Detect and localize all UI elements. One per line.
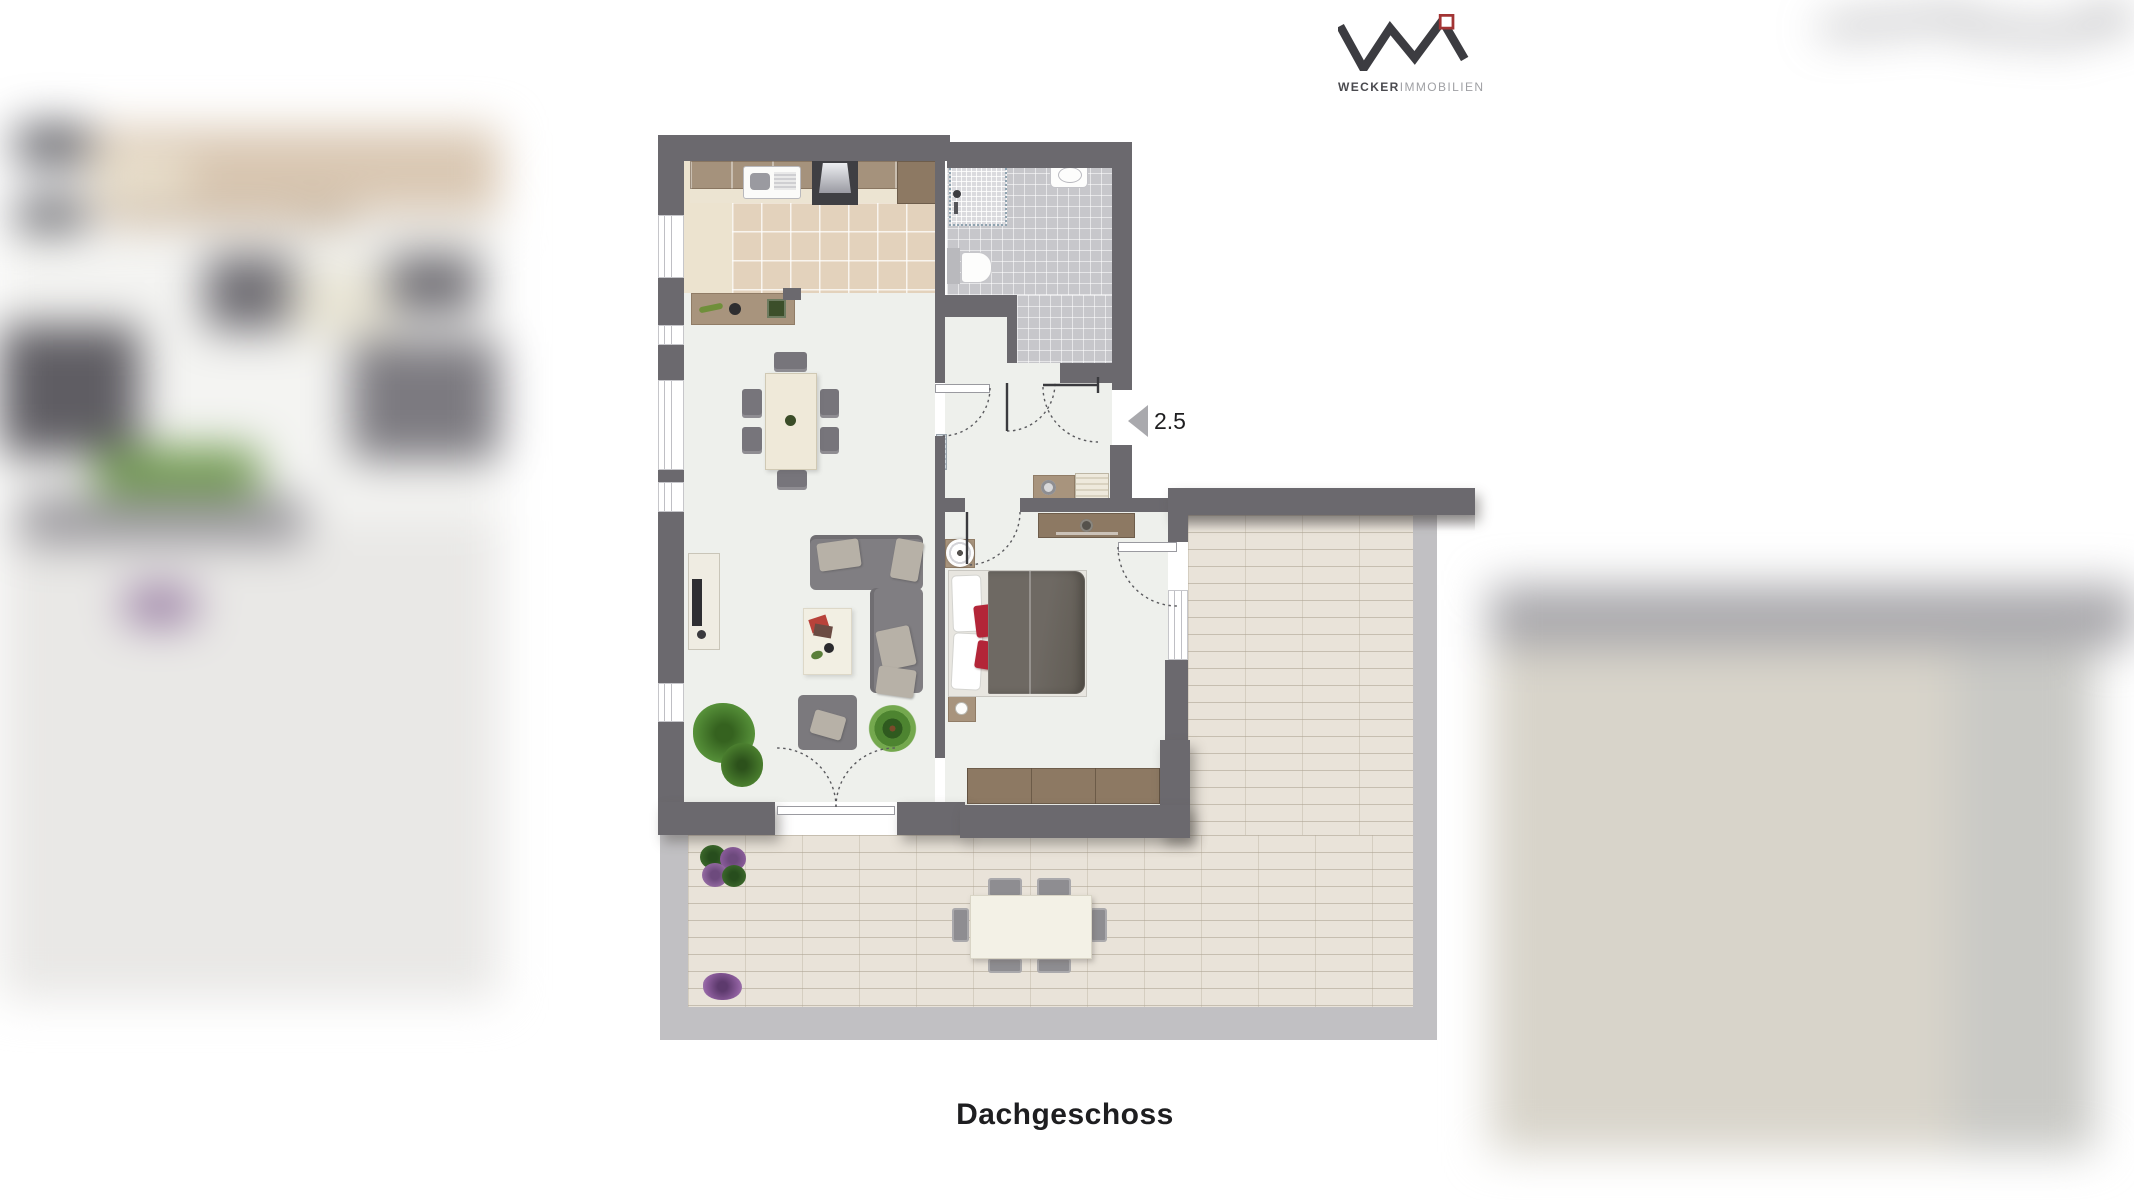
wall	[658, 722, 684, 802]
kitchen-corner-cabinet	[897, 161, 937, 204]
entrance-arrow-icon	[1128, 405, 1148, 437]
living-room-door-leaf	[935, 384, 990, 393]
bathroom-floor-lower	[1017, 295, 1112, 363]
blurred-shape	[1490, 585, 2134, 647]
sofa-cushion	[816, 538, 861, 572]
wall	[783, 288, 801, 300]
brand-name-light: IMMOBILIEN	[1400, 80, 1485, 94]
dining-table	[765, 373, 817, 470]
plant-foliage	[721, 743, 763, 787]
blurred-shape	[350, 340, 500, 460]
blurred-shape	[100, 200, 355, 225]
blurred-shape	[1960, 22, 2080, 39]
decor-bowl	[729, 303, 741, 315]
wall	[947, 142, 1132, 168]
decor-plant-box	[767, 299, 786, 318]
brand-logo: WECKERIMMOBILIEN	[1338, 14, 1488, 94]
sideboard	[691, 293, 795, 325]
dining-chair	[742, 389, 762, 418]
sofa-cushion	[875, 665, 917, 698]
logo-red-square	[1440, 15, 1453, 28]
planter-greens	[722, 865, 746, 887]
duvet-split	[1029, 571, 1031, 694]
blurred-shape	[20, 495, 305, 545]
sink-basin	[750, 173, 770, 190]
duvet	[988, 571, 1085, 694]
terrace-upper	[1188, 515, 1413, 835]
entrance-label: 2.5	[1154, 408, 1186, 435]
bed	[948, 570, 1087, 697]
toilet	[961, 252, 992, 283]
blurred-shape	[0, 520, 500, 1000]
screenshot-stage: WECKERIMMOBILIEN	[0, 0, 2134, 1200]
wall	[1165, 660, 1188, 740]
wall	[935, 142, 945, 383]
wall	[658, 512, 684, 683]
dining-chair	[774, 352, 807, 372]
wall	[897, 802, 965, 835]
table-centerpiece	[785, 415, 796, 426]
sink-drainer	[774, 172, 796, 190]
terrace-chair	[1037, 958, 1071, 973]
speaker	[697, 630, 706, 639]
extractor-hood	[819, 163, 851, 193]
terrace-french-door	[777, 806, 895, 815]
wall	[937, 295, 1017, 317]
large-plant	[693, 703, 763, 790]
tv	[692, 579, 702, 626]
hall-cabinet	[1075, 473, 1109, 501]
blurred-shape	[15, 198, 87, 231]
decor-plate	[1080, 519, 1093, 532]
blurred-shape	[125, 588, 195, 623]
nightstand	[948, 696, 976, 722]
wall	[1110, 445, 1132, 505]
blurred-shape	[290, 268, 398, 338]
flower-planter	[700, 845, 748, 888]
kitchen-tile-area	[732, 202, 935, 293]
cup	[824, 643, 834, 653]
coffee-table	[803, 608, 852, 675]
decor-runner	[1056, 532, 1118, 535]
terrace-chair	[1090, 908, 1107, 942]
tv-lowboard	[688, 553, 720, 650]
dresser	[1038, 513, 1135, 538]
wall	[658, 345, 684, 380]
brand-wordmark: WECKERIMMOBILIEN	[1338, 80, 1488, 94]
window	[658, 482, 684, 512]
window	[1168, 590, 1188, 660]
bedroom-terrace-door-leaf	[1118, 542, 1177, 552]
blurred-shape	[1955, 647, 2095, 1152]
wall	[960, 805, 1190, 838]
wall	[943, 498, 965, 512]
shower	[949, 164, 1007, 226]
decor-bowl	[1041, 480, 1056, 495]
window	[658, 380, 684, 470]
dining-chair	[820, 427, 839, 454]
blurred-shape	[90, 160, 190, 195]
armchair	[798, 695, 857, 750]
brand-name-bold: WECKER	[1338, 80, 1400, 94]
logo-zigzag-mark	[1338, 14, 1470, 71]
blurred-shape	[205, 255, 295, 330]
wall	[658, 278, 684, 325]
wall	[1007, 317, 1017, 363]
shower-fitting	[954, 202, 958, 214]
magazine	[813, 624, 833, 639]
blurred-shape	[388, 255, 478, 313]
blurred-left-page	[0, 0, 500, 1200]
terrace-chair	[952, 908, 969, 942]
wall	[658, 802, 775, 835]
armchair-cushion	[809, 709, 846, 741]
bedside-lamp	[946, 539, 974, 567]
flower-planter	[703, 973, 742, 1000]
blurred-shape	[0, 325, 140, 455]
wall	[935, 436, 945, 758]
decor-leaves	[699, 303, 724, 314]
terrace-edge-right	[1413, 503, 1437, 1040]
apartment-floor-plan: 2.5	[655, 130, 1475, 1045]
dining-chair	[777, 470, 807, 490]
blurred-shape	[15, 125, 90, 165]
shower-head	[953, 190, 961, 198]
toilet-cistern	[947, 248, 960, 284]
wall	[1020, 498, 1168, 512]
terrace-edge-bottom	[660, 1007, 1437, 1040]
blurred-right-page	[1490, 0, 2134, 1200]
terrace-table	[970, 895, 1092, 959]
dining-chair	[820, 389, 839, 418]
dining-chair	[742, 427, 762, 454]
window	[658, 325, 684, 345]
wall-shadow	[1188, 515, 1475, 531]
wall	[1112, 142, 1132, 390]
wall	[658, 135, 684, 215]
wardrobe	[967, 768, 1160, 804]
window	[658, 683, 684, 722]
floor-caption: Dachgeschoss	[655, 1098, 1475, 1132]
wall	[1168, 515, 1188, 542]
wall	[658, 135, 950, 161]
terrace-chair	[988, 958, 1022, 973]
wall	[658, 470, 684, 482]
wall	[1060, 363, 1132, 383]
wall	[1168, 488, 1475, 515]
blurred-shape	[2077, 10, 2132, 29]
blurred-shape	[1820, 11, 1970, 33]
window	[658, 215, 684, 278]
basin-bowl	[1058, 167, 1082, 183]
decor-sprig	[810, 649, 824, 661]
decor-dish	[956, 703, 967, 714]
terrace-edge-left	[660, 835, 688, 1007]
